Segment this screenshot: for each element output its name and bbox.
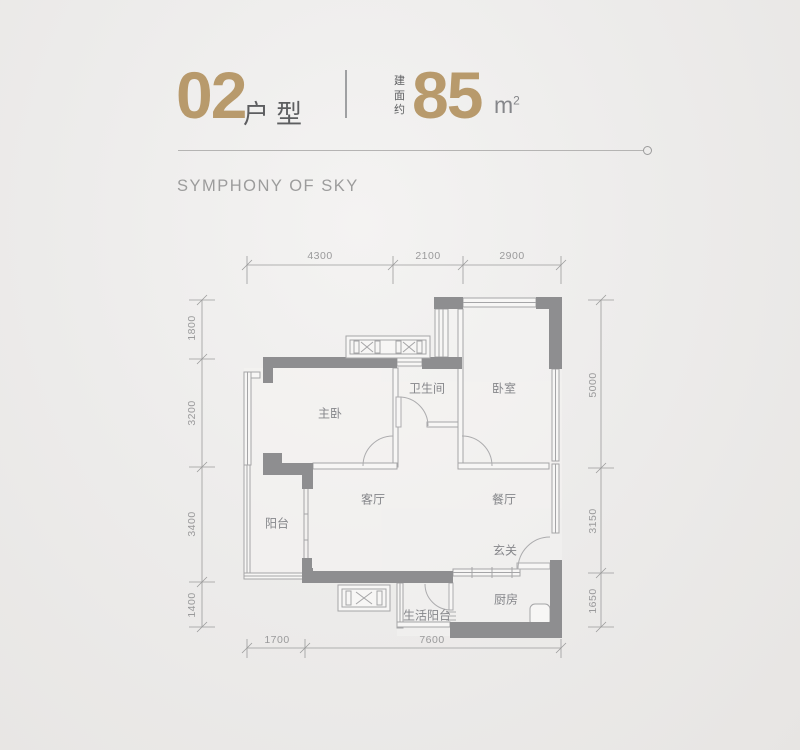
floorplan-page: 02 户型 建 面 约 85 m2 SYMPHONY OF SKY [0, 0, 800, 750]
dim-left-3: 3400 [186, 511, 198, 536]
dim-left-1: 1800 [186, 315, 198, 340]
dim-top-3: 2900 [499, 250, 524, 262]
room-label-dining-room: 餐厅 [492, 491, 516, 508]
dim-bottom-1: 1700 [264, 634, 289, 646]
ac-platform-top-icon [346, 336, 430, 358]
room-label-living-room: 客厅 [361, 491, 385, 508]
dim-right-1: 5000 [587, 372, 599, 397]
dim-top-1: 4300 [307, 250, 332, 262]
dim-top-2: 2100 [415, 250, 440, 262]
room-label-bedroom: 卧室 [492, 380, 516, 397]
room-label-bathroom: 卫生间 [409, 380, 445, 397]
floorplan-drawing [0, 0, 800, 750]
dim-right-3: 1650 [587, 588, 599, 613]
room-label-kitchen: 厨房 [494, 591, 518, 608]
entry-door-leaf [517, 563, 550, 569]
room-label-master-bedroom: 主卧 [318, 405, 342, 422]
bathroom-door-leaf [396, 397, 401, 427]
dim-bottom-2: 7600 [419, 634, 444, 646]
room-label-foyer: 玄关 [493, 542, 517, 559]
room-label-utility-balcony: 生活阳台 [403, 607, 451, 624]
ac-platform-bottom-icon [338, 585, 390, 611]
room-label-balcony: 阳台 [265, 515, 289, 532]
dim-left-2: 3200 [186, 400, 198, 425]
dim-left-4: 1400 [186, 592, 198, 617]
dim-right-2: 3150 [587, 508, 599, 533]
